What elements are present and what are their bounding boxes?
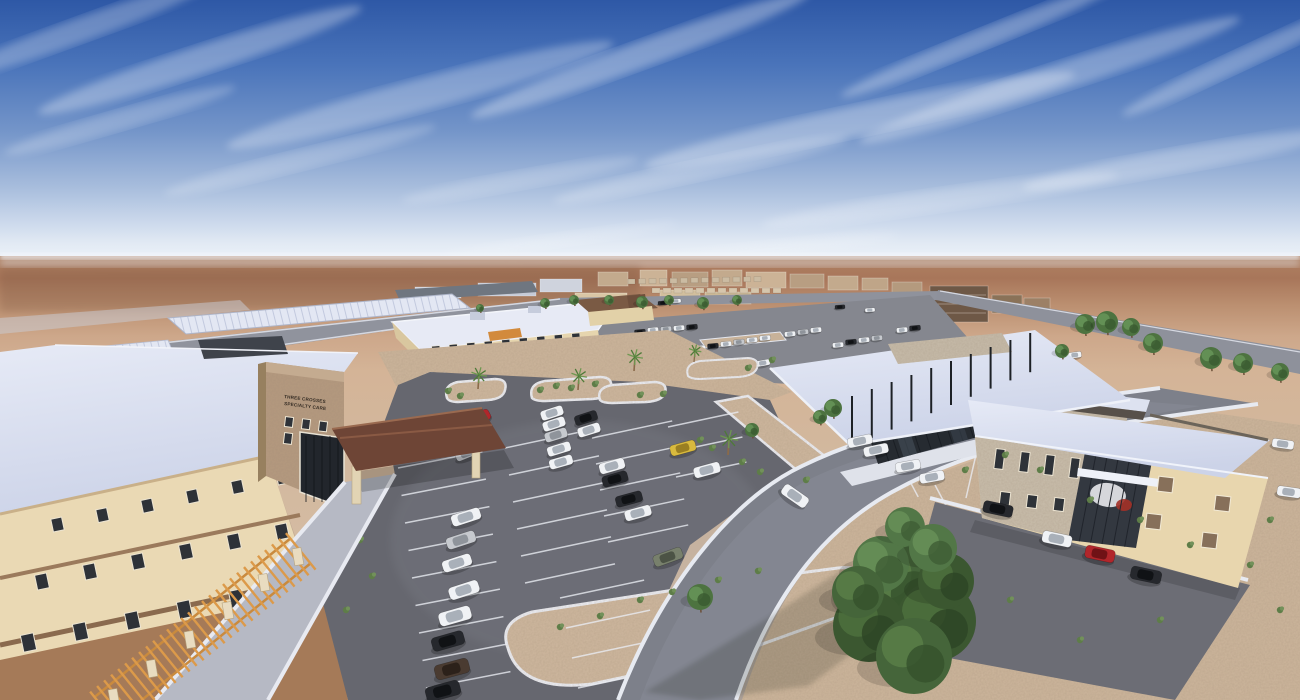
rendering-stage: THREE CROSSES SPECIALTY CARE xyxy=(0,0,1300,700)
distant-house xyxy=(723,277,730,282)
tree xyxy=(636,296,648,308)
window xyxy=(231,479,244,494)
window xyxy=(301,419,310,430)
distant-house xyxy=(681,278,688,283)
tree xyxy=(687,584,713,610)
distant-house xyxy=(685,288,693,293)
distant-house xyxy=(762,288,770,293)
window xyxy=(283,433,292,445)
tree xyxy=(1055,344,1069,358)
distant-house xyxy=(729,288,737,293)
distant-house xyxy=(702,278,709,283)
window xyxy=(318,421,327,432)
tree xyxy=(1143,333,1163,353)
distant-house xyxy=(773,288,781,293)
distant-building xyxy=(746,272,786,288)
distant-house xyxy=(707,288,715,293)
window xyxy=(51,517,64,532)
distant-house xyxy=(740,288,748,293)
tree xyxy=(813,410,827,424)
window xyxy=(227,533,242,550)
tree xyxy=(569,295,579,305)
distant-building xyxy=(540,279,582,292)
tree xyxy=(909,524,957,572)
window xyxy=(83,563,98,580)
distant-house xyxy=(691,278,698,283)
window xyxy=(1053,497,1065,511)
tree xyxy=(1122,318,1140,336)
distant-house xyxy=(628,279,635,284)
distant-house xyxy=(718,288,726,293)
distant-house xyxy=(649,279,656,284)
tree xyxy=(664,295,674,305)
distant-house xyxy=(733,277,740,282)
window xyxy=(1214,495,1231,512)
distant-building xyxy=(598,272,628,286)
distant-building xyxy=(862,278,888,290)
tree xyxy=(604,295,614,305)
window xyxy=(275,523,290,540)
tree xyxy=(832,566,884,618)
tree xyxy=(1096,311,1118,333)
window xyxy=(124,611,140,630)
window xyxy=(131,553,146,570)
tree xyxy=(1200,347,1222,369)
distant-house xyxy=(639,279,646,284)
tree xyxy=(476,304,484,312)
window xyxy=(186,489,199,504)
tree xyxy=(745,423,759,437)
distant-house xyxy=(754,277,761,282)
window xyxy=(179,543,194,560)
window xyxy=(1145,513,1162,530)
tree xyxy=(876,618,952,694)
window xyxy=(1201,532,1218,549)
tree xyxy=(1233,353,1253,373)
window xyxy=(284,417,293,428)
distant-house xyxy=(670,278,677,283)
tree xyxy=(1271,363,1289,381)
window xyxy=(1019,452,1030,473)
distant-house xyxy=(712,277,719,282)
window xyxy=(35,573,50,590)
window xyxy=(1044,455,1055,476)
distant-house xyxy=(652,288,660,293)
distant-building xyxy=(790,274,824,288)
tree xyxy=(732,295,742,305)
distant-house xyxy=(744,277,751,282)
distant-house xyxy=(674,288,682,293)
distant-house xyxy=(751,288,759,293)
window xyxy=(1157,476,1174,493)
window xyxy=(1026,494,1038,508)
window xyxy=(141,498,154,513)
distant-house xyxy=(696,288,704,293)
tree xyxy=(540,298,550,308)
distant-house xyxy=(663,288,671,293)
window xyxy=(20,633,36,652)
distant-building xyxy=(828,276,858,290)
window xyxy=(994,449,1005,470)
aerial-rendering: THREE CROSSES SPECIALTY CARE xyxy=(0,0,1300,700)
tree xyxy=(697,297,709,309)
distant-house xyxy=(660,278,667,283)
window xyxy=(96,508,109,523)
tree xyxy=(824,399,842,417)
window xyxy=(72,622,88,641)
